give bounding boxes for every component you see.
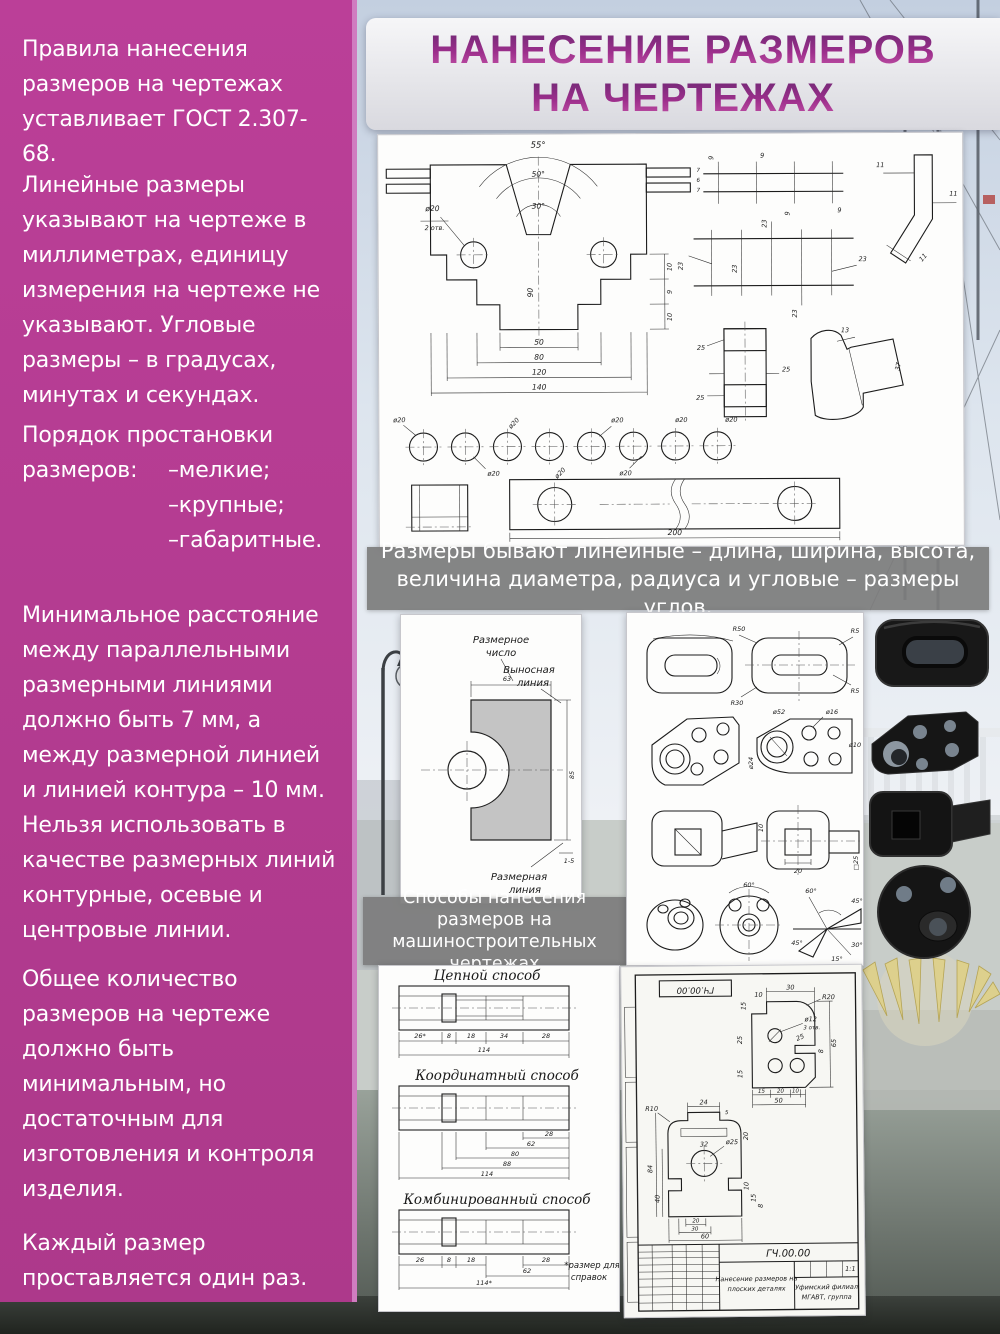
poster: Правила нанесения размеров на чертежах у… bbox=[0, 0, 1000, 1334]
svg-text:10: 10 bbox=[666, 263, 674, 271]
angles-diagram: 60° 45° 45° 30° 15° bbox=[791, 887, 863, 963]
sheet-scale: 1:1 bbox=[845, 1265, 856, 1273]
svg-text:26*: 26* bbox=[414, 1032, 426, 1040]
rendered-parts-column bbox=[862, 612, 1000, 965]
svg-text:9: 9 bbox=[760, 152, 764, 160]
svg-text:84: 84 bbox=[646, 1165, 654, 1173]
svg-text:ø20: ø20 bbox=[486, 470, 499, 478]
order-item-large: –крупные; bbox=[168, 488, 340, 523]
svg-text:ø20: ø20 bbox=[506, 416, 521, 431]
sheet-part1-drawing: ø12 3 отв. 30 15 10 R20 25 8 65 25 15 15… bbox=[735, 983, 838, 1108]
part-flange bbox=[878, 866, 970, 958]
svg-text:8: 8 bbox=[817, 1049, 825, 1053]
chain-method-title: Цепной способ bbox=[434, 968, 542, 984]
svg-text:114: 114 bbox=[478, 1046, 490, 1054]
sheet-org-line1: Уфимский филиал bbox=[795, 1283, 858, 1292]
svg-text:10: 10 bbox=[742, 1182, 750, 1190]
svg-text:R20: R20 bbox=[822, 993, 835, 1001]
hatched-bar-example: 25 25 25 bbox=[696, 321, 791, 423]
rules-paragraph-quantity: Общее количество размеров на чертеже дол… bbox=[22, 962, 340, 1207]
sheet-doc-title-line2: плоских деталях bbox=[727, 1285, 785, 1294]
svg-text:ø20: ø20 bbox=[610, 416, 623, 424]
flange-view: 60° bbox=[715, 881, 783, 961]
svg-text:50: 50 bbox=[534, 338, 544, 347]
svg-text:23: 23 bbox=[731, 265, 739, 273]
svg-text:7: 7 bbox=[696, 168, 700, 174]
sheet-stamp-rotated: ГЧ.00.00 bbox=[677, 984, 715, 994]
svg-text:15: 15 bbox=[750, 1194, 758, 1202]
svg-text:9: 9 bbox=[783, 211, 791, 215]
page-title-line2: НА ЧЕРТЕЖАХ bbox=[531, 74, 835, 122]
svg-text:18: 18 bbox=[467, 1256, 475, 1264]
flange-iso bbox=[647, 899, 703, 950]
svg-text:18: 18 bbox=[467, 1032, 475, 1040]
svg-text:62: 62 bbox=[523, 1267, 531, 1275]
svg-text:26: 26 bbox=[416, 1256, 424, 1264]
reference-note-line2: справок bbox=[571, 1273, 608, 1283]
svg-text:34: 34 bbox=[500, 1032, 508, 1040]
coordinate-method-drawing: 28 62 80 88 114 bbox=[392, 1086, 576, 1180]
svg-text:ø20: ø20 bbox=[724, 416, 737, 424]
svg-text:□25: □25 bbox=[852, 856, 860, 870]
sheet-part2-drawing: ø25 R10 24 5 32 20 84 40 10 15 8 20 30 6… bbox=[645, 1098, 765, 1243]
dimensioning-methods-panel: Цепной способ 26* 8 18 34 28 114 Координ… bbox=[378, 965, 620, 1312]
rules-paragraph-once: Каждый размер проставляется один раз. bbox=[22, 1226, 340, 1296]
part-bracket bbox=[872, 712, 978, 774]
rules-paragraph-distance: Минимальное расстояние между параллельны… bbox=[22, 598, 340, 948]
svg-text:90: 90 bbox=[526, 288, 535, 298]
svg-text:23: 23 bbox=[760, 219, 768, 227]
svg-text:28: 28 bbox=[545, 1130, 553, 1138]
svg-text:6: 6 bbox=[697, 178, 701, 184]
svg-text:9: 9 bbox=[666, 290, 674, 294]
svg-text:ø20: ø20 bbox=[618, 469, 631, 477]
slot-block-view: R50 R5 R30 R5 bbox=[731, 625, 860, 707]
svg-text:60°: 60° bbox=[743, 881, 755, 889]
svg-text:28: 28 bbox=[542, 1256, 550, 1264]
part-slot-block bbox=[876, 620, 988, 686]
bracket-iso bbox=[652, 717, 739, 785]
svg-text:R5: R5 bbox=[851, 687, 860, 695]
sheet-org-line2: МГАВТ, группа bbox=[802, 1293, 852, 1302]
svg-text:9: 9 bbox=[707, 156, 715, 160]
svg-text:11: 11 bbox=[917, 252, 928, 264]
dim-23-example: 23 23 23 23 23 bbox=[676, 219, 867, 318]
slot-block-iso bbox=[647, 635, 733, 693]
svg-text:8: 8 bbox=[447, 1032, 451, 1040]
bracket-view: ø52 ø16 ø10 ø24 bbox=[747, 708, 861, 773]
svg-text:1-5: 1-5 bbox=[564, 857, 575, 865]
dim-9-example: 9 9 9 9 bbox=[703, 151, 843, 216]
caption-methods: Способы нанесения размеров на машиностро… bbox=[363, 897, 626, 965]
caption-dimension-types-text: Размеры бывают линейные – длина, ширина,… bbox=[377, 537, 979, 621]
svg-text:114: 114 bbox=[481, 1170, 493, 1178]
sidebar: Правила нанесения размеров на чертежах у… bbox=[0, 0, 357, 1302]
svg-text:28: 28 bbox=[542, 1032, 550, 1040]
svg-text:11: 11 bbox=[876, 161, 884, 169]
svg-text:30: 30 bbox=[691, 1226, 699, 1232]
svg-text:ø16: ø16 bbox=[825, 708, 838, 716]
sectioned-block-drawing: 7 6 7 55° 50° 30° ø20 2 отв. 90 50 80 bbox=[386, 140, 701, 396]
svg-text:ø20: ø20 bbox=[424, 204, 439, 213]
svg-text:25: 25 bbox=[795, 1032, 806, 1043]
svg-text:ø20: ø20 bbox=[392, 416, 405, 424]
svg-text:10: 10 bbox=[757, 824, 765, 832]
svg-text:11: 11 bbox=[949, 190, 957, 198]
svg-text:20: 20 bbox=[742, 1132, 750, 1140]
svg-text:20: 20 bbox=[777, 1089, 785, 1095]
dimensioning-examples-drawing-panel: 7 6 7 55° 50° 30° ø20 2 отв. 90 50 80 bbox=[377, 132, 965, 549]
svg-text:80: 80 bbox=[511, 1150, 519, 1158]
svg-text:ø10: ø10 bbox=[848, 741, 861, 749]
svg-text:Размерная: Размерная bbox=[491, 872, 547, 883]
reference-note-line1: *размер для bbox=[564, 1261, 619, 1271]
svg-text:Выносная: Выносная bbox=[503, 665, 555, 676]
svg-text:32: 32 bbox=[700, 1140, 708, 1148]
svg-text:R30: R30 bbox=[731, 699, 744, 707]
coordinate-method-title: Координатный способ bbox=[414, 1068, 579, 1084]
rules-paragraph-order: Порядок простановки размеров: –мелкие; –… bbox=[22, 418, 340, 558]
svg-text:8: 8 bbox=[447, 1256, 451, 1264]
title-panel: НАНЕСЕНИЕ РАЗМЕРОВ НА ЧЕРТЕЖАХ bbox=[366, 18, 1000, 130]
svg-text:24: 24 bbox=[699, 1098, 707, 1106]
svg-text:13: 13 bbox=[841, 326, 849, 334]
caption-methods-text: Способы нанесения размеров на машиностро… bbox=[371, 887, 618, 975]
svg-text:30: 30 bbox=[786, 983, 794, 991]
bent-strip-example: 11 11 11 bbox=[876, 155, 958, 264]
svg-text:37: 37 bbox=[893, 361, 903, 372]
svg-text:23: 23 bbox=[858, 255, 866, 263]
bracket-view bbox=[406, 485, 474, 531]
svg-text:ø52: ø52 bbox=[772, 708, 785, 716]
caption-dimension-types: Размеры бывают линейные – длина, ширина,… bbox=[367, 547, 989, 610]
svg-text:25: 25 bbox=[782, 365, 790, 373]
order-item-small: –мелкие; bbox=[168, 453, 270, 488]
svg-text:20: 20 bbox=[794, 867, 802, 875]
svg-text:5: 5 bbox=[725, 1110, 729, 1116]
svg-text:ø20: ø20 bbox=[552, 466, 567, 481]
svg-text:25: 25 bbox=[736, 1036, 744, 1044]
svg-text:15°: 15° bbox=[831, 955, 843, 963]
rules-paragraph-gost: Правила нанесения размеров на чертежах у… bbox=[22, 32, 340, 172]
square-hole-view: 20 □25 10 bbox=[757, 805, 863, 875]
svg-text:114*: 114* bbox=[476, 1279, 492, 1287]
chain-method-drawing: 26* 8 18 34 28 114 bbox=[392, 986, 576, 1058]
shaped-part-example: 13 37 bbox=[811, 326, 903, 420]
dimension-terms-panel: 63 85 Размерное число Выносная линия Раз… bbox=[400, 614, 582, 904]
svg-text:8: 8 bbox=[757, 1204, 765, 1208]
circles-row: ø20 ø20 ø20 ø20 ø20 ø20 ø20 ø20 bbox=[392, 415, 738, 482]
svg-text:R5: R5 bbox=[851, 627, 860, 635]
svg-text:линия: линия bbox=[516, 678, 549, 689]
svg-text:88: 88 bbox=[503, 1160, 511, 1168]
svg-text:10: 10 bbox=[754, 991, 762, 999]
combined-method-drawing: 26 8 18 28 62 114* *размер для справок bbox=[392, 1210, 619, 1290]
svg-text:63: 63 bbox=[503, 675, 511, 683]
svg-text:40: 40 bbox=[654, 1195, 662, 1203]
svg-text:число: число bbox=[486, 648, 516, 659]
svg-text:10: 10 bbox=[666, 313, 674, 321]
svg-text:3 отв.: 3 отв. bbox=[803, 1025, 820, 1031]
svg-text:25: 25 bbox=[697, 344, 705, 352]
svg-text:65: 65 bbox=[830, 1039, 838, 1047]
svg-text:50: 50 bbox=[774, 1097, 782, 1105]
order-item-overall: –габаритные. bbox=[168, 523, 340, 558]
sheet-code: ГЧ.00.00 bbox=[766, 1248, 810, 1259]
svg-text:R10: R10 bbox=[645, 1105, 658, 1113]
svg-text:R50: R50 bbox=[733, 625, 746, 633]
rules-paragraph-linear: Линейные размеры указывают на чертеже в … bbox=[22, 168, 340, 413]
sheet-doc-title-line1: Нанесение размеров на bbox=[715, 1274, 797, 1283]
svg-text:7: 7 bbox=[697, 188, 701, 194]
part-square-hole-block bbox=[870, 792, 990, 856]
flag bbox=[983, 195, 995, 204]
order-line2: размеров: bbox=[22, 453, 168, 488]
svg-text:10: 10 bbox=[792, 1088, 800, 1094]
svg-text:20: 20 bbox=[692, 1218, 700, 1224]
svg-text:140: 140 bbox=[532, 383, 547, 392]
square-hole-iso bbox=[652, 811, 757, 866]
svg-text:23: 23 bbox=[677, 262, 685, 270]
svg-text:25: 25 bbox=[696, 394, 704, 402]
svg-text:60: 60 bbox=[701, 1232, 709, 1240]
drawing-sheet-panel: ГЧ.00.00 ø12 3 отв. 30 15 10 R20 25 8 65… bbox=[620, 964, 866, 1319]
svg-text:9: 9 bbox=[837, 206, 841, 214]
svg-text:15: 15 bbox=[740, 1002, 748, 1010]
svg-text:Размерное: Размерное bbox=[473, 635, 529, 646]
svg-text:ø20: ø20 bbox=[674, 416, 687, 424]
svg-text:15: 15 bbox=[758, 1089, 766, 1095]
svg-text:55°: 55° bbox=[531, 141, 546, 151]
svg-text:ø25: ø25 bbox=[725, 1138, 738, 1146]
combined-method-title: Комбинированный способ bbox=[402, 1192, 591, 1208]
svg-text:80: 80 bbox=[534, 353, 544, 362]
svg-text:2 отв.: 2 отв. bbox=[425, 224, 445, 232]
order-line1: Порядок простановки bbox=[22, 418, 340, 453]
sheet-title-block: ГЧ.00.00 Нанесение размеров на плоских д… bbox=[638, 1243, 859, 1311]
svg-text:45°: 45° bbox=[791, 939, 803, 947]
svg-text:120: 120 bbox=[532, 368, 547, 377]
page-title-line1: НАНЕСЕНИЕ РАЗМЕРОВ bbox=[430, 26, 936, 74]
svg-text:15: 15 bbox=[736, 1070, 744, 1078]
svg-text:23: 23 bbox=[791, 309, 799, 317]
long-plate-view: 200 bbox=[510, 478, 840, 541]
svg-text:60°: 60° bbox=[805, 887, 817, 895]
svg-text:85: 85 bbox=[568, 771, 576, 779]
machine-parts-examples-panel: R50 R5 R30 R5 ø52 ø16 ø10 ø24 bbox=[626, 612, 864, 966]
svg-text:62: 62 bbox=[527, 1140, 535, 1148]
svg-text:ø24: ø24 bbox=[747, 757, 755, 770]
